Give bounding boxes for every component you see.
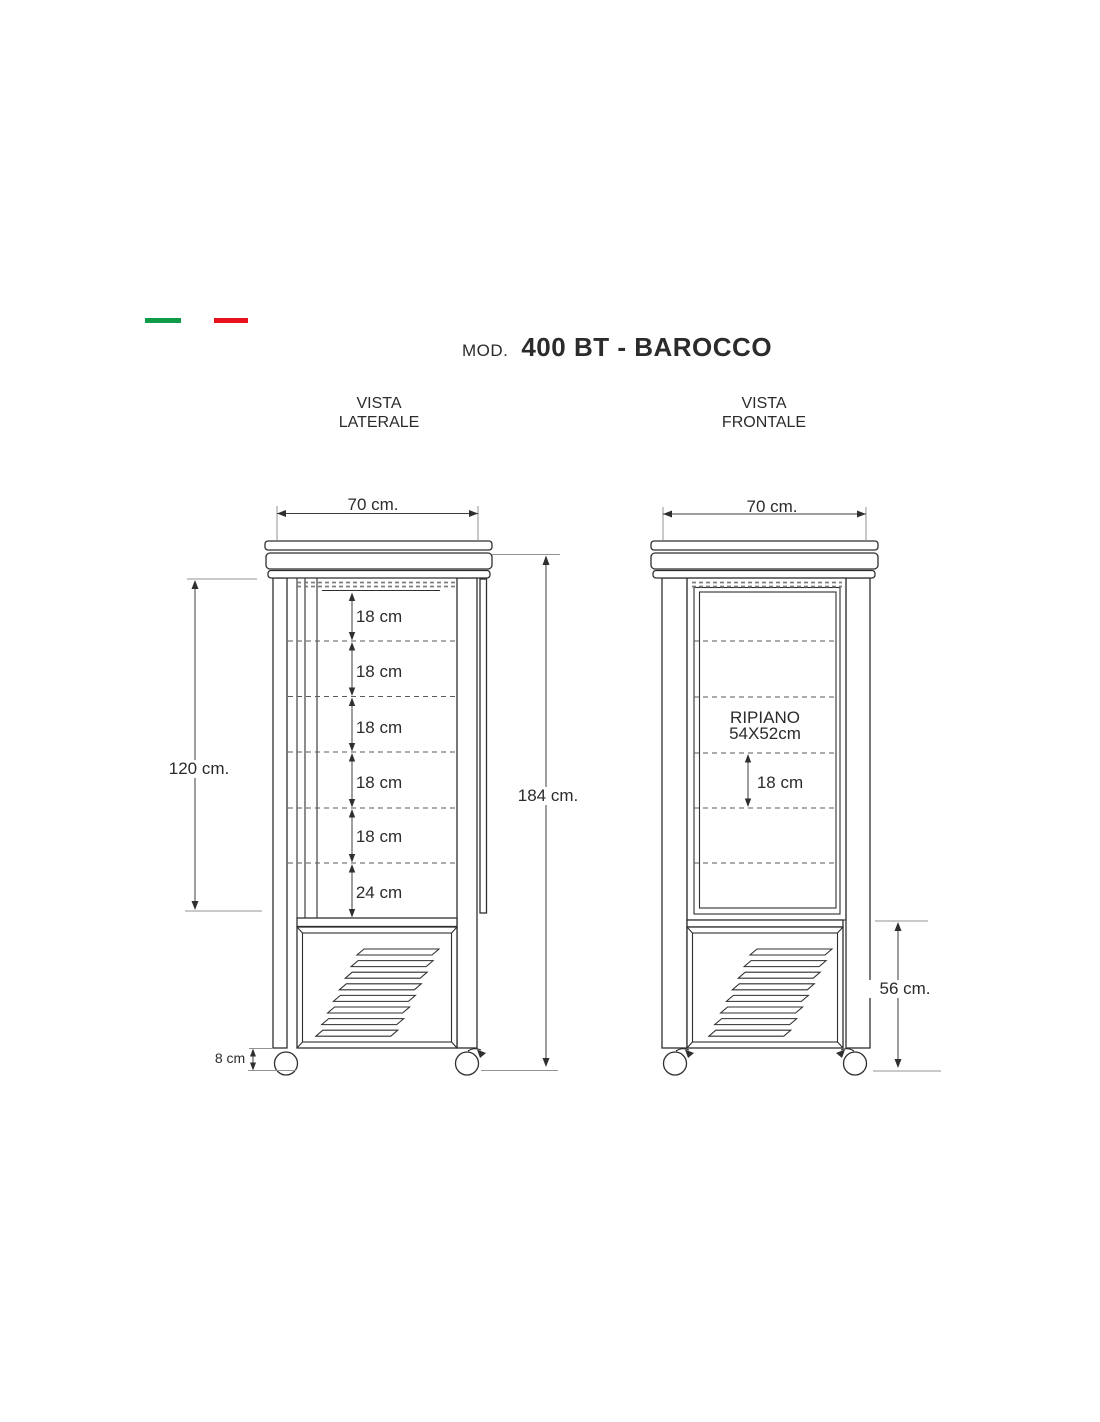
front-wheel-right [836,1049,867,1075]
side-top-dashed-rows [297,583,455,591]
front-top-width-label: 70 cm. [736,498,808,516]
italian-flag-red-bar [214,318,248,323]
side-display-height-label: 120 cm. [160,760,238,778]
side-shelf-gap-label-5: 18 cm [352,828,406,846]
side-view-caption: VISTA LATERALE [307,395,451,432]
side-display-height-dimension [185,579,262,911]
side-bottom-shelf-label: 24 cm [351,884,407,902]
front-left-post [662,578,687,1048]
italian-flag-green-bar [145,318,181,323]
front-shelf-size-line2: 54X52cm [714,726,816,742]
side-wheel-left [275,1052,298,1075]
front-shelf-size-label: RIPIANO 54X52cm [714,710,816,741]
side-total-height-dimension [492,555,560,1068]
side-top-width-label: 70 cm. [337,496,409,514]
front-right-post [846,578,870,1048]
side-top-cap [265,541,492,578]
front-base-band [687,920,843,927]
front-view-caption: VISTA FRONTALE [692,395,836,432]
model-prefix-label: MOD. [462,341,508,361]
side-rear-post [457,578,477,1048]
side-shelf-gap-label-4: 18 cm [352,774,406,792]
side-total-height-label: 184 cm. [510,787,586,805]
front-shelf-lines [694,641,838,863]
front-base-height-label: 56 cm. [866,980,944,998]
front-glass-door [687,578,846,920]
side-glass-lines [297,578,317,918]
front-top-dashed-rows [692,583,842,587]
front-top-cap [651,541,878,578]
front-view-caption-line1: VISTA [692,395,836,414]
front-view-caption-line2: FRONTALE [692,414,836,433]
cabinet-line-drawing [0,0,1100,1422]
technical-drawing-page: MOD. 400 BT - BAROCCO VISTA LATERALE VIS… [0,0,1100,1422]
side-shelf-gap-label-3: 18 cm [352,719,406,737]
front-wheel-left [664,1049,695,1075]
drawing-title: MOD. 400 BT - BAROCCO [397,332,837,363]
front-shelf-gap-label: 18 cm [755,774,805,792]
side-base-band [297,918,457,927]
side-wheel-height-label: 8 cm [208,1051,252,1066]
side-view-caption-line2: LATERALE [307,414,451,433]
side-view-caption-line1: VISTA [307,395,451,414]
model-name-label: 400 BT - BAROCCO [521,332,772,363]
side-shelf-gap-label-1: 18 cm [352,608,406,626]
front-ventilation-grille [687,927,843,1048]
side-shelf-gap-label-2: 18 cm [352,663,406,681]
front-shelf-gap-dimension [745,754,751,807]
side-front-post [273,578,287,1048]
side-wheel-height-dimension [249,1049,272,1071]
side-back-panel [480,579,487,913]
side-ventilation-grille [297,927,457,1048]
side-wheel-right [456,1049,487,1075]
